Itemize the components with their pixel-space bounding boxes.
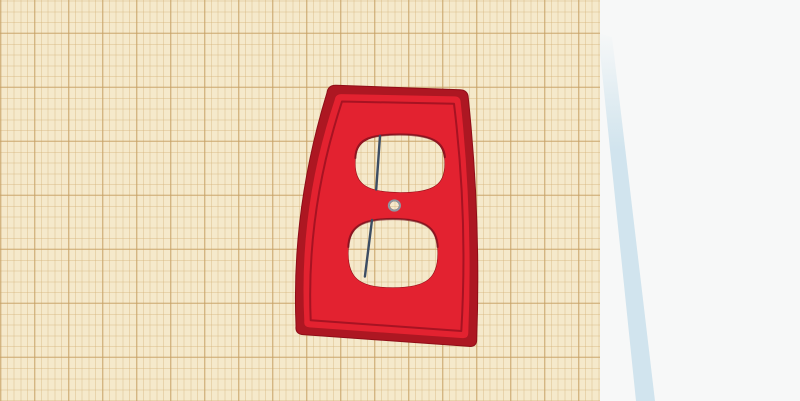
scene-overlay — [0, 0, 800, 401]
hole-inner-shadow-top — [355, 135, 444, 159]
hole-inner-shadow-bottom — [348, 219, 437, 247]
hole-wall-edge-top — [376, 136, 380, 190]
plate-face[interactable] — [304, 94, 470, 338]
outlet-plate-model[interactable] — [295, 85, 477, 346]
screw-hole-rim — [389, 200, 400, 210]
viewport-3d[interactable]: Workplane — [0, 0, 800, 401]
hole-wall-edge-bottom — [365, 220, 372, 277]
workplane-edge-band — [598, 33, 655, 401]
